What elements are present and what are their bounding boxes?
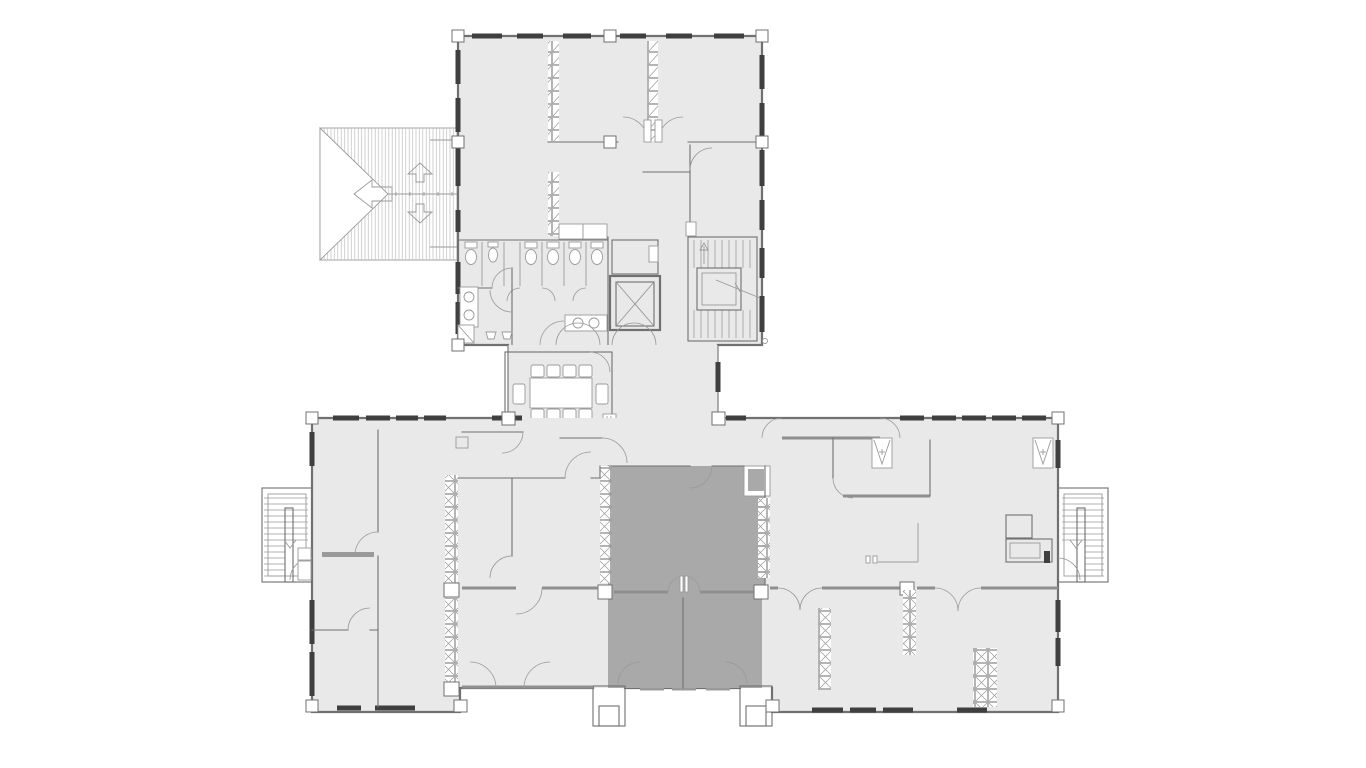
shaft-wall-partition [758, 498, 770, 578]
stair-direction-arrow [1070, 540, 1082, 548]
conference-table [530, 378, 592, 408]
shaft-wall-partition [445, 475, 458, 583]
highlighted-suite-room-upper[interactable] [608, 466, 765, 592]
column-valve-icon [872, 438, 892, 468]
exterior-stair-right [1058, 488, 1108, 582]
counter [559, 224, 583, 239]
sink-counter [565, 315, 607, 331]
stair-direction-arrow [284, 540, 296, 548]
exterior-stair-left [262, 488, 312, 582]
column-valve-icon [1033, 438, 1053, 468]
sink-icon [464, 310, 474, 320]
lower-office-wing [262, 412, 1108, 726]
floor-plan-page [0, 0, 1366, 768]
shaft-wall-partition [445, 598, 458, 682]
shaft-wall-partition [973, 648, 997, 707]
shaft-wall-partition [903, 590, 916, 655]
shaft-wall-partition [548, 41, 559, 141]
stair-treads [1062, 498, 1104, 576]
upper-office-wing [452, 30, 768, 351]
highlighted-suite[interactable] [598, 466, 770, 688]
shaft-wall-partition [818, 608, 831, 690]
shaft-wall-partition [600, 466, 612, 583]
roof-terrace [320, 128, 458, 260]
interior-sill [322, 552, 374, 557]
floor-drain [486, 332, 496, 339]
floor-drain [502, 332, 512, 339]
shaft-wall-stub [548, 172, 559, 236]
floor-plan-canvas [0, 0, 1366, 768]
counter [583, 224, 607, 239]
sink-icon [464, 292, 474, 302]
highlighted-suite-room-lower[interactable] [608, 592, 762, 688]
